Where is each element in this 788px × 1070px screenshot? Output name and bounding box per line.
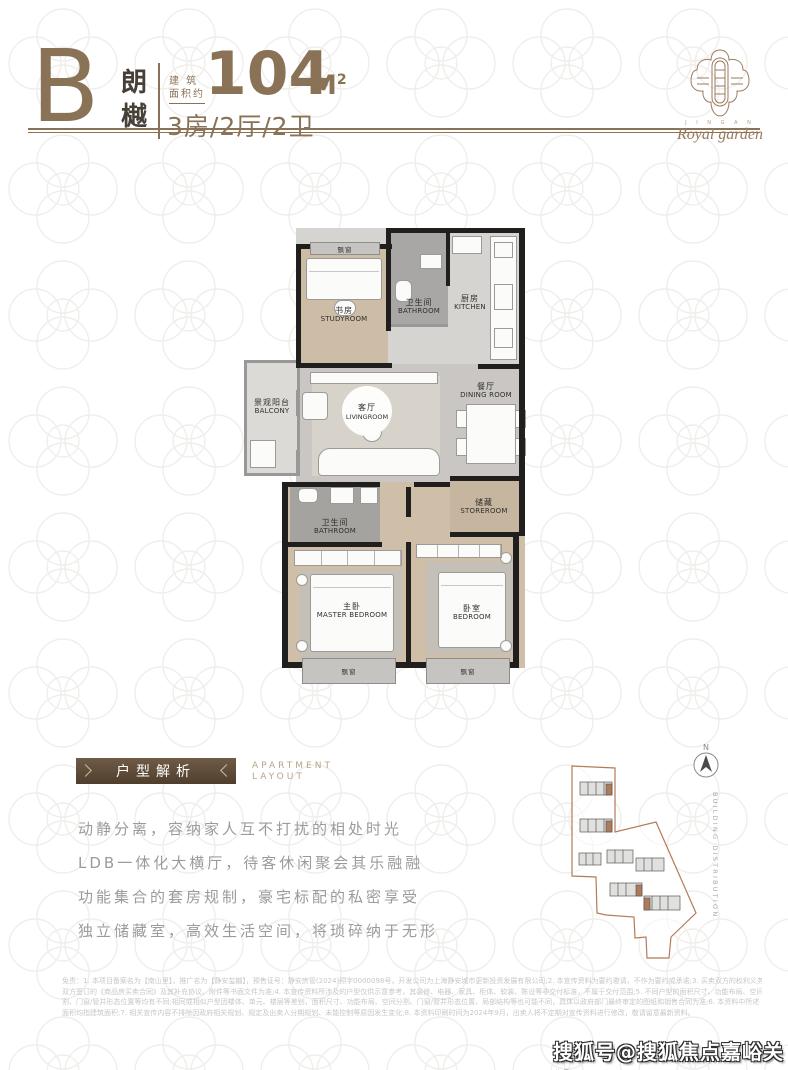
- disclaimer-line: 双方签订的《商品房买卖合同》及其补充协议、附件等书面文件为准;4. 本宣传资料所…: [62, 987, 762, 998]
- dining-table: [466, 404, 516, 464]
- study-bed: [306, 258, 382, 300]
- wall: [386, 228, 525, 233]
- wall: [450, 476, 519, 481]
- area-prefix-label: 建 筑 面积约: [169, 75, 205, 104]
- area-unit-main: M: [310, 70, 337, 101]
- wall: [296, 244, 301, 368]
- kitchen-sink: [494, 242, 513, 258]
- unit-name: 朗樾: [119, 66, 149, 134]
- wall: [478, 364, 525, 369]
- kitchen-top-cabinet: [452, 236, 482, 254]
- master-wardrobe: [294, 550, 402, 566]
- armchair: [302, 392, 328, 420]
- room-label-bathroom1: 卫生间BATHROOM: [390, 298, 448, 316]
- brand-script-text: Royal garden: [645, 126, 788, 144]
- chevron-right-icon: [79, 764, 92, 777]
- room-label-studyroom: 书房STUDYROOM: [304, 306, 384, 324]
- site-caption: BUILDING DISTRIBUTION: [711, 792, 719, 918]
- room-label-bathroom2: 卫生间BATHROOM: [292, 518, 378, 536]
- kitchen-stove: [494, 284, 513, 310]
- sofa: [318, 448, 440, 476]
- analysis-line: 功能集合的套房规制，豪宅标配的私密享受: [78, 880, 438, 914]
- wall: [519, 228, 525, 370]
- room-label-bedroom: 卧室BEDROOM: [434, 604, 510, 622]
- wall: [513, 532, 519, 668]
- toilet: [298, 488, 318, 503]
- kitchen-fridge: [494, 328, 513, 348]
- wall: [414, 482, 450, 487]
- disclaimer-line: 面积均指建筑面积;7. 相关宣传内容不排除因政府相关规划、规定及出卖人分期规划、…: [62, 1008, 762, 1019]
- room-label-kitchen: 厨房KITCHEN: [448, 294, 492, 312]
- washer: [250, 440, 276, 468]
- room-config: 3房/2厅/2卫: [167, 107, 315, 143]
- bedroom-wardrobe: [416, 544, 502, 558]
- wall: [450, 532, 519, 537]
- room-label-diningroom: 餐厅DINING ROOM: [448, 382, 524, 400]
- wall: [406, 487, 411, 517]
- wall: [519, 476, 525, 536]
- area-unit-sup: 2: [337, 72, 347, 88]
- brand-logo: J I N G A N Royal garden: [645, 48, 788, 144]
- room-label-balcony: 景观阳台BALCONY: [246, 398, 298, 416]
- wall: [390, 324, 448, 327]
- sink: [330, 487, 354, 504]
- nightstand: [500, 640, 512, 652]
- bay-window-label: 飘窗: [461, 666, 476, 676]
- disclaimer: 免责：1. 本项目备案名为【南山里】，推广名为【静安玺樾】，预售证号：静安房管(…: [62, 976, 762, 1018]
- wall: [446, 228, 450, 286]
- nightstand: [296, 574, 308, 586]
- area-unit: M2: [310, 70, 347, 101]
- nightstand: [296, 640, 308, 652]
- wall: [406, 542, 411, 664]
- bay-window-label: 飘窗: [342, 666, 357, 676]
- bay-window: 飘窗: [310, 242, 380, 255]
- wall: [288, 482, 380, 487]
- brochure-page: B 朗樾 建 筑 面积约 104 M2 3房/2厅/2卫: [0, 0, 788, 1070]
- room-label-livingroom: 客厅LIVINGROOM: [342, 386, 392, 436]
- wall: [282, 482, 288, 668]
- section-title: 户型解析: [116, 761, 196, 781]
- room-label-storeroom: 储藏STOREROOM: [450, 498, 518, 516]
- svg-text:N: N: [703, 743, 709, 752]
- area-prefix-line1: 建 筑: [169, 76, 198, 87]
- analysis-line: 动静分离，容纳家人互不打扰的相处时光: [78, 812, 438, 846]
- room-label-master-bedroom: 主卧MASTER BEDROOM: [298, 602, 406, 620]
- sink: [420, 254, 442, 269]
- bay-window-label: 飘窗: [338, 244, 353, 254]
- disclaimer-line: 割、门窗/管井形态位置等均有不同;相同或相似户型因楼体、单元、楼层等差别，面积尺…: [62, 997, 762, 1008]
- analysis-line: 独立储藏室，高效生活空间，将琐碎纳于无形: [78, 914, 438, 948]
- analysis-paragraph: 动静分离，容纳家人互不打扰的相处时光 LDB一体化大横厅，待客休闲聚会其乐融融 …: [78, 812, 438, 948]
- wall: [282, 542, 382, 547]
- chevron-left-icon: [220, 764, 233, 777]
- compass-icon: N: [694, 743, 718, 777]
- analysis-line: LDB一体化大横厅，待客休闲聚会其乐融融: [78, 846, 438, 880]
- bay-window: 飘窗: [426, 658, 510, 684]
- section-subtitle: APARTMENT LAYOUT: [252, 761, 333, 783]
- royal-garden-emblem-icon: [689, 48, 751, 118]
- bay-window: 飘窗: [302, 658, 396, 684]
- dining-chair: [456, 410, 467, 428]
- building-distribution-map: N BUILDING DISTRIBUTION: [556, 740, 788, 972]
- dining-chair: [456, 438, 467, 456]
- disclaimer-line: 免责：1. 本项目备案名为【南山里】，推广名为【静安玺樾】，预售证号：静安房管(…: [62, 976, 762, 987]
- wall: [296, 450, 300, 476]
- area-prefix-line2: 面积约: [169, 89, 205, 100]
- shower: [360, 487, 378, 504]
- tv-cabinet: [310, 372, 438, 384]
- section-ribbon: 户型解析: [76, 758, 236, 784]
- floorplan: 飘窗 飘窗 飘窗: [238, 226, 528, 692]
- watermark: 搜狐号@搜狐焦点嘉峪关站: [553, 1036, 788, 1070]
- unit-letter: B: [31, 46, 100, 128]
- wall: [296, 363, 392, 368]
